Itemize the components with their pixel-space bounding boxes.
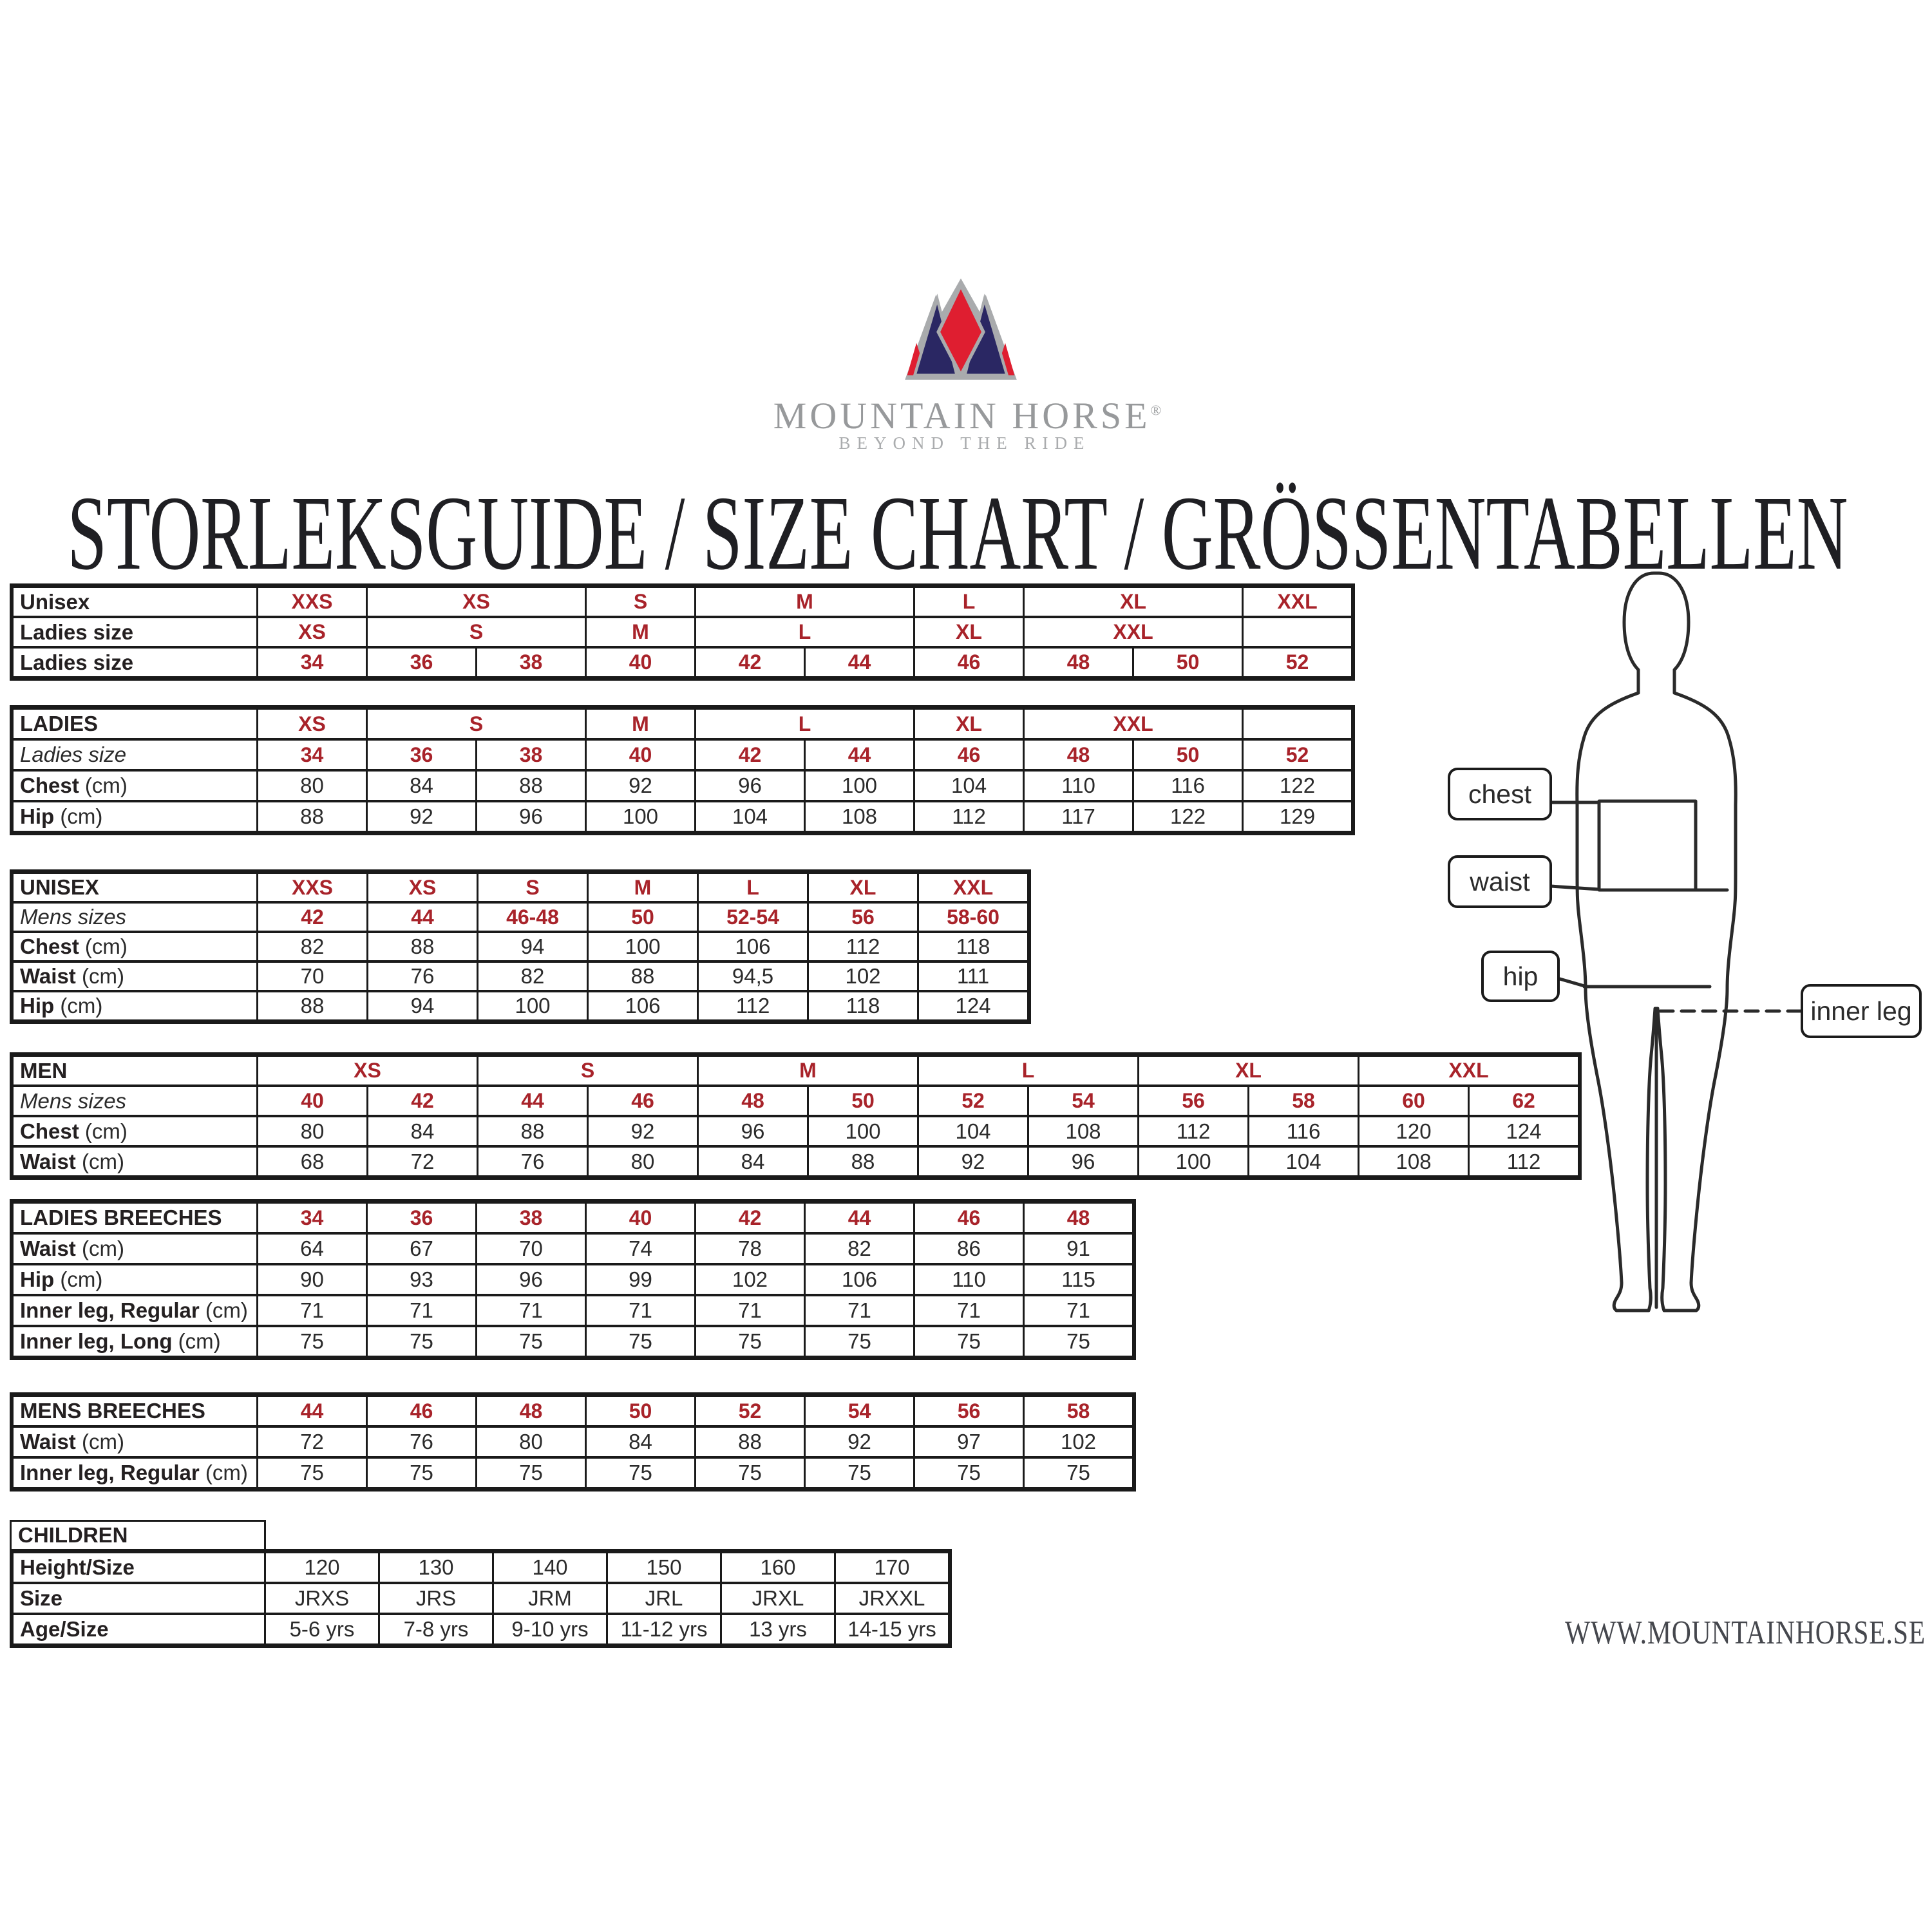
size-cell: XL — [808, 873, 918, 902]
size-cell: 68 — [258, 1146, 368, 1177]
chest-label: chest — [1468, 779, 1532, 809]
size-cell: 108 — [1028, 1116, 1139, 1146]
size-cell: JRXS — [265, 1583, 379, 1614]
size-cell: 129 — [1243, 801, 1352, 832]
size-cell: 58 — [1249, 1086, 1359, 1116]
size-cell: 120 — [265, 1552, 379, 1583]
size-cell: 102 — [1024, 1426, 1133, 1457]
row-label: Chest (cm) — [13, 770, 258, 801]
table-ladies-breeches: LADIES BREECHES3436384042444648Waist (cm… — [10, 1199, 1136, 1360]
row-label: Ladies size — [13, 617, 258, 647]
size-cell: 52 — [1243, 647, 1352, 677]
size-cell: 46 — [914, 1202, 1024, 1233]
inner-leg-label: inner leg — [1810, 996, 1911, 1026]
row-label: Hip (cm) — [13, 991, 258, 1021]
table-title: CHILDREN — [18, 1523, 128, 1548]
table-row: Height/Size120130140150160170 — [13, 1552, 949, 1583]
size-cell: 75 — [367, 1326, 477, 1357]
size-cell: 92 — [918, 1146, 1028, 1177]
size-cell: S — [478, 873, 588, 902]
size-cell: 116 — [1249, 1116, 1359, 1146]
size-cell: 71 — [477, 1295, 586, 1326]
size-cell: 48 — [1024, 739, 1133, 770]
size-cell: 84 — [698, 1146, 808, 1177]
row-label-text: Hip — [20, 994, 54, 1018]
table-row: Waist (cm)72768084889297102 — [13, 1426, 1133, 1457]
size-cell: 118 — [918, 932, 1028, 961]
website-url: WWW.MOUNTAINHORSE.SE — [1558, 1607, 1932, 1659]
row-label-text: Size — [20, 1586, 62, 1610]
row-label-text: Unisex — [20, 590, 90, 614]
size-cell: XL — [1024, 587, 1243, 617]
size-cell: 75 — [586, 1326, 696, 1357]
size-cell: 34 — [258, 739, 367, 770]
table-ladies: LADIESXSSMLXLXXLLadies size3436384042444… — [10, 705, 1355, 835]
brand-tagline: BEYOND THE RIDE — [839, 433, 1091, 453]
table-row: Hip (cm)90939699102106110115 — [13, 1264, 1133, 1295]
row-label: Mens sizes — [13, 1086, 258, 1116]
size-cell: 88 — [258, 801, 367, 832]
size-cell: 122 — [1243, 770, 1352, 801]
table-children: Height/Size120130140150160170SizeJRXSJRS… — [10, 1549, 952, 1648]
row-label: Chest (cm) — [13, 932, 258, 961]
size-cell: 71 — [367, 1295, 477, 1326]
size-cell: S — [478, 1056, 698, 1086]
size-cell: 96 — [1028, 1146, 1139, 1177]
row-label-text: Hip — [20, 804, 54, 828]
table-row: Mens sizes424446-485052-545658-60 — [13, 902, 1028, 932]
children-table-header: CHILDREN — [10, 1520, 266, 1551]
size-cell: 71 — [914, 1295, 1024, 1326]
size-cell: 100 — [1139, 1146, 1249, 1177]
size-cell: 82 — [805, 1233, 914, 1264]
size-cell: 70 — [258, 961, 368, 991]
size-cell: 90 — [258, 1264, 367, 1295]
size-cell: 86 — [914, 1233, 1024, 1264]
size-cell: 124 — [918, 991, 1028, 1021]
size-cell: 82 — [258, 932, 368, 961]
table-row: Chest (cm)8084889296100104110116122 — [13, 770, 1352, 801]
size-cell: 50 — [1133, 739, 1243, 770]
size-cell: 75 — [477, 1457, 586, 1488]
size-cell: 140 — [493, 1552, 607, 1583]
size-cell: 94,5 — [698, 961, 808, 991]
table-row: Inner leg, Long (cm)7575757575757575 — [13, 1326, 1133, 1357]
size-cell: 36 — [367, 739, 477, 770]
size-cell: 74 — [586, 1233, 696, 1264]
size-cell: XS — [258, 1056, 478, 1086]
size-cell: 100 — [805, 770, 914, 801]
size-cell: 42 — [696, 647, 805, 677]
size-cell: 76 — [478, 1146, 588, 1177]
size-cell: 112 — [1139, 1116, 1249, 1146]
row-label-text: Ladies size — [20, 743, 126, 766]
row-label-unit: (cm) — [79, 934, 128, 958]
size-cell: 75 — [477, 1326, 586, 1357]
table-row: Chest (cm)828894100106112118 — [13, 932, 1028, 961]
size-cell: 67 — [367, 1233, 477, 1264]
row-label-text: Height/Size — [20, 1555, 135, 1579]
size-cell: 54 — [1028, 1086, 1139, 1116]
size-cell: 106 — [805, 1264, 914, 1295]
size-cell: JRXXL — [835, 1583, 949, 1614]
row-label-text: Inner leg, Regular — [20, 1461, 200, 1484]
size-cell: 94 — [368, 991, 478, 1021]
size-cell: 75 — [258, 1326, 367, 1357]
row-label: Ladies size — [13, 739, 258, 770]
row-label: MENS BREECHES — [13, 1396, 258, 1426]
row-label-text: Mens sizes — [20, 905, 126, 929]
size-cell: JRS — [379, 1583, 493, 1614]
row-label: Inner leg, Regular (cm) — [13, 1295, 258, 1326]
size-cell: 50 — [1133, 647, 1243, 677]
size-cell: 7-8 yrs — [379, 1614, 493, 1645]
size-cell: 71 — [1024, 1295, 1133, 1326]
size-cell: 80 — [588, 1146, 698, 1177]
table-row: Ladies size34363840424446485052 — [13, 647, 1352, 677]
size-cell: S — [367, 617, 586, 647]
size-cell: 75 — [914, 1457, 1024, 1488]
size-cell: 44 — [805, 1202, 914, 1233]
size-cell: 76 — [367, 1426, 477, 1457]
table-row: Inner leg, Regular (cm)7575757575757575 — [13, 1457, 1133, 1488]
row-label: Height/Size — [13, 1552, 265, 1583]
size-cell: 42 — [696, 739, 805, 770]
size-cell: 84 — [367, 770, 477, 801]
size-cell: 71 — [805, 1295, 914, 1326]
size-cell: 56 — [808, 902, 918, 932]
size-cell: 75 — [1024, 1457, 1133, 1488]
size-cell: 92 — [586, 770, 696, 801]
size-cell: XS — [258, 617, 367, 647]
size-cell: 75 — [586, 1457, 696, 1488]
table-row: Hip (cm)8894100106112118124 — [13, 991, 1028, 1021]
row-label-unit: (cm) — [79, 773, 128, 797]
size-cell: 75 — [805, 1457, 914, 1488]
size-cell: 100 — [588, 932, 698, 961]
row-label-unit: (cm) — [173, 1329, 221, 1353]
row-label-text: MENS BREECHES — [20, 1399, 205, 1423]
size-cell: 160 — [721, 1552, 835, 1583]
size-cell: 13 yrs — [721, 1614, 835, 1645]
row-label-unit: (cm) — [76, 1236, 124, 1260]
brand-name: MOUNTAIN HORSE® — [773, 394, 1161, 437]
row-label-text: Mens sizes — [20, 1089, 126, 1113]
size-cell: 75 — [1024, 1326, 1133, 1357]
row-label-text: Chest — [20, 773, 79, 797]
size-cell: 150 — [607, 1552, 721, 1583]
size-cell: 70 — [477, 1233, 586, 1264]
size-cell: 71 — [696, 1295, 805, 1326]
table-row: Waist (cm)6872768084889296100104108112 — [13, 1146, 1579, 1177]
size-cell: 96 — [696, 770, 805, 801]
size-cell: 110 — [1024, 770, 1133, 801]
size-cell: 170 — [835, 1552, 949, 1583]
table-row: Age/Size5-6 yrs7-8 yrs9-10 yrs11-12 yrs1… — [13, 1614, 949, 1645]
size-cell: 100 — [586, 801, 696, 832]
size-cell: 78 — [696, 1233, 805, 1264]
size-cell: 80 — [477, 1426, 586, 1457]
size-cell: 71 — [586, 1295, 696, 1326]
row-label-text: LADIES — [20, 712, 98, 735]
row-label: Unisex — [13, 587, 258, 617]
size-cell: 99 — [586, 1264, 696, 1295]
size-cell — [1243, 708, 1352, 739]
row-label: Mens sizes — [13, 902, 258, 932]
size-cell: XS — [367, 587, 586, 617]
size-cell: 56 — [914, 1396, 1024, 1426]
row-label-text: Ladies size — [20, 650, 133, 674]
size-cell — [1243, 617, 1352, 647]
size-cell: JRXL — [721, 1583, 835, 1614]
size-cell: 46 — [367, 1396, 477, 1426]
size-cell: 96 — [477, 801, 586, 832]
size-cell: 46 — [914, 739, 1024, 770]
row-label: Size — [13, 1583, 265, 1614]
row-label-text: Waist — [20, 964, 76, 988]
size-cell: 75 — [258, 1457, 367, 1488]
size-cell: 110 — [914, 1264, 1024, 1295]
body-measurement-figure: chest waist hip inner leg — [1436, 567, 1932, 1327]
mountain-horse-logo-icon — [900, 276, 1021, 383]
size-cell: 75 — [805, 1326, 914, 1357]
size-cell: 44 — [478, 1086, 588, 1116]
size-cell: 48 — [698, 1086, 808, 1116]
table-row: SizeJRXSJRSJRMJRLJRXLJRXXL — [13, 1583, 949, 1614]
size-cell: 97 — [914, 1426, 1024, 1457]
size-cell: 104 — [914, 770, 1024, 801]
size-cell: XXL — [1024, 617, 1243, 647]
size-cell: 36 — [367, 647, 477, 677]
size-cell: 42 — [696, 1202, 805, 1233]
size-cell: L — [696, 617, 914, 647]
table-row: Hip (cm)889296100104108112117122129 — [13, 801, 1352, 832]
size-cell: 75 — [914, 1326, 1024, 1357]
size-cell: 112 — [808, 932, 918, 961]
size-cell: 52 — [696, 1396, 805, 1426]
size-cell: 91 — [1024, 1233, 1133, 1264]
size-cell: 56 — [1139, 1086, 1249, 1116]
size-cell: 88 — [478, 1116, 588, 1146]
row-label-text: LADIES BREECHES — [20, 1206, 222, 1229]
row-label: Age/Size — [13, 1614, 265, 1645]
table-row: Waist (cm)7076828894,5102111 — [13, 961, 1028, 991]
table-row: LADIESXSSMLXLXXL — [13, 708, 1352, 739]
row-label: Inner leg, Long (cm) — [13, 1326, 258, 1357]
size-cell: 76 — [368, 961, 478, 991]
size-cell: 106 — [698, 932, 808, 961]
size-cell: 88 — [258, 991, 368, 1021]
size-cell: 80 — [258, 1116, 368, 1146]
row-label: Chest (cm) — [13, 1116, 258, 1146]
size-cell: 117 — [1024, 801, 1133, 832]
size-cell: L — [918, 1056, 1139, 1086]
hip-connector — [1560, 979, 1584, 986]
size-cell: XL — [1139, 1056, 1359, 1086]
size-cell: 100 — [478, 991, 588, 1021]
size-cell: 40 — [258, 1086, 368, 1116]
size-cell: 44 — [368, 902, 478, 932]
size-cell: JRL — [607, 1583, 721, 1614]
table-row: LADIES BREECHES3436384042444648 — [13, 1202, 1133, 1233]
row-label: Hip (cm) — [13, 801, 258, 832]
size-cell: 88 — [696, 1426, 805, 1457]
size-cell: 50 — [808, 1086, 918, 1116]
row-label-unit: (cm) — [79, 1119, 128, 1143]
size-cell: 88 — [808, 1146, 918, 1177]
size-cell: XXS — [258, 873, 368, 902]
size-cell: 115 — [1024, 1264, 1133, 1295]
size-cell: 38 — [477, 739, 586, 770]
table-row: Waist (cm)6467707478828691 — [13, 1233, 1133, 1264]
size-cell: 9-10 yrs — [493, 1614, 607, 1645]
size-cell: 75 — [696, 1457, 805, 1488]
row-label: Waist (cm) — [13, 1233, 258, 1264]
row-label-unit: (cm) — [76, 1150, 124, 1173]
row-label-unit: (cm) — [200, 1461, 248, 1484]
size-cell: 96 — [698, 1116, 808, 1146]
size-cell: L — [698, 873, 808, 902]
size-cell: 96 — [477, 1264, 586, 1295]
table-row: Chest (cm)808488929610010410811211612012… — [13, 1116, 1579, 1146]
row-label: Waist (cm) — [13, 1426, 258, 1457]
size-cell: 46 — [588, 1086, 698, 1116]
row-label-text: Waist — [20, 1150, 76, 1173]
size-cell: 48 — [477, 1396, 586, 1426]
size-cell: 46-48 — [478, 902, 588, 932]
table-row: Inner leg, Regular (cm)7171717171717171 — [13, 1295, 1133, 1326]
table-row: MENS BREECHES4446485052545658 — [13, 1396, 1133, 1426]
row-label-text: Chest — [20, 1119, 79, 1143]
size-cell: 42 — [258, 902, 368, 932]
size-cell: XL — [914, 708, 1024, 739]
size-cell: 38 — [477, 647, 586, 677]
size-cell: M — [698, 1056, 918, 1086]
size-cell: 44 — [805, 647, 914, 677]
size-cell: 92 — [805, 1426, 914, 1457]
row-label: Hip (cm) — [13, 1264, 258, 1295]
size-cell: XXL — [1024, 708, 1243, 739]
row-label-text: Waist — [20, 1236, 76, 1260]
size-cell: 54 — [805, 1396, 914, 1426]
size-cell: 122 — [1133, 801, 1243, 832]
size-cell: XXS — [258, 587, 367, 617]
size-cell: 44 — [258, 1396, 367, 1426]
row-label-text: MEN — [20, 1059, 67, 1083]
size-cell: 112 — [914, 801, 1024, 832]
size-cell: 34 — [258, 647, 367, 677]
row-label-text: Waist — [20, 1430, 76, 1454]
size-chart-page: MOUNTAIN HORSE® BEYOND THE RIDE STORLEKS… — [0, 0, 1932, 1932]
size-cell: 58 — [1024, 1396, 1133, 1426]
size-cell: M — [586, 617, 696, 647]
table-unisex: UNISEXXXSXSSMLXLXXLMens sizes424446-4850… — [10, 869, 1031, 1024]
size-cell: 108 — [805, 801, 914, 832]
row-label: Ladies size — [13, 647, 258, 677]
size-cell: L — [696, 708, 914, 739]
size-cell: 104 — [918, 1116, 1028, 1146]
table-row: UnisexXXSXSSMLXLXXL — [13, 587, 1352, 617]
row-label: MEN — [13, 1056, 258, 1086]
size-cell: 102 — [696, 1264, 805, 1295]
size-cell: 92 — [367, 801, 477, 832]
size-cell: 118 — [808, 991, 918, 1021]
table-row: MENXSSMLXLXXL — [13, 1056, 1579, 1086]
size-cell: 75 — [367, 1457, 477, 1488]
size-cell: 102 — [808, 961, 918, 991]
size-cell: 71 — [258, 1295, 367, 1326]
size-cell: 130 — [379, 1552, 493, 1583]
table-row: UNISEXXXSXSSMLXLXXL — [13, 873, 1028, 902]
size-cell: 58-60 — [918, 902, 1028, 932]
row-label-text: Ladies size — [20, 620, 133, 644]
size-cell: 112 — [698, 991, 808, 1021]
size-cell: 14-15 yrs — [835, 1614, 949, 1645]
table-row: Ladies size34363840424446485052 — [13, 739, 1352, 770]
size-cell: XS — [258, 708, 367, 739]
table-mens-breeches: MENS BREECHES4446485052545658Waist (cm)7… — [10, 1392, 1136, 1492]
size-cell: 38 — [477, 1202, 586, 1233]
row-label-unit: (cm) — [54, 1267, 102, 1291]
waist-label: waist — [1469, 867, 1530, 896]
size-cell: 92 — [588, 1116, 698, 1146]
size-cell: 88 — [368, 932, 478, 961]
row-label-unit: (cm) — [200, 1298, 248, 1322]
size-cell: 82 — [478, 961, 588, 991]
row-label-text: Age/Size — [20, 1617, 109, 1641]
size-cell: XXL — [1243, 587, 1352, 617]
size-cell: 84 — [368, 1116, 478, 1146]
table-row: Mens sizes404244464850525456586062 — [13, 1086, 1579, 1116]
size-cell: 88 — [588, 961, 698, 991]
row-label-text: Hip — [20, 1267, 54, 1291]
size-cell: 116 — [1133, 770, 1243, 801]
row-label: Inner leg, Regular (cm) — [13, 1457, 258, 1488]
size-cell: L — [914, 587, 1024, 617]
row-label-text: Chest — [20, 934, 79, 958]
size-cell: 111 — [918, 961, 1028, 991]
row-label-unit: (cm) — [76, 964, 124, 988]
size-cell: XS — [368, 873, 478, 902]
row-label-text: Inner leg, Long — [20, 1329, 173, 1353]
size-cell: 80 — [258, 770, 367, 801]
size-cell: 75 — [696, 1326, 805, 1357]
row-label-text: UNISEX — [20, 875, 99, 899]
size-cell: 50 — [588, 902, 698, 932]
size-cell: 36 — [367, 1202, 477, 1233]
size-cell: 72 — [258, 1426, 367, 1457]
website-url-text: WWW.MOUNTAINHORSE.SE — [1565, 1615, 1926, 1651]
size-cell: 84 — [586, 1426, 696, 1457]
size-cell: M — [588, 873, 698, 902]
size-cell: 52 — [918, 1086, 1028, 1116]
row-label: UNISEX — [13, 873, 258, 902]
size-cell: 48 — [1024, 1202, 1133, 1233]
size-cell: S — [367, 708, 586, 739]
size-cell: 48 — [1024, 647, 1133, 677]
size-cell: 104 — [1249, 1146, 1359, 1177]
row-label: Waist (cm) — [13, 961, 258, 991]
table-men: MENXSSMLXLXXLMens sizes40424446485052545… — [10, 1052, 1582, 1180]
size-cell: 106 — [588, 991, 698, 1021]
registered-mark: ® — [1151, 402, 1162, 419]
size-cell: 46 — [914, 647, 1024, 677]
hip-label: hip — [1503, 961, 1539, 991]
size-cell: 64 — [258, 1233, 367, 1264]
size-cell: 42 — [368, 1086, 478, 1116]
size-cell: 52 — [1243, 739, 1352, 770]
row-label: Waist (cm) — [13, 1146, 258, 1177]
